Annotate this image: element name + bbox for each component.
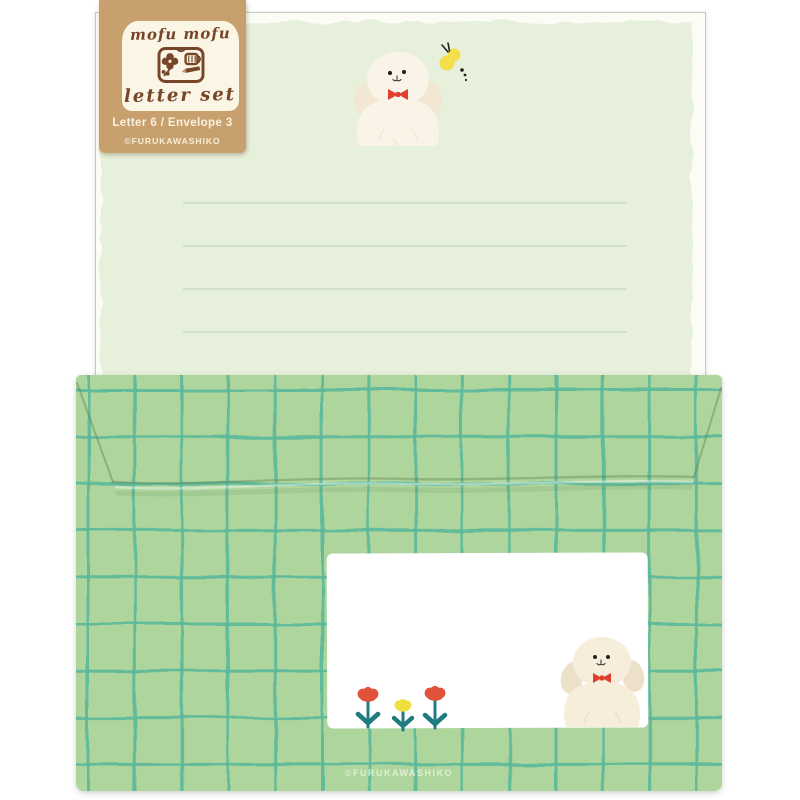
brand-name: mofu mofu (130, 25, 231, 43)
product-tag: mofu mofu (99, 0, 246, 153)
tag-contents: Letter 6 / Envelope 3 (99, 117, 246, 129)
tag-copyright: ©FURUKAWASHIKO (99, 136, 246, 146)
tulip-flowers (358, 686, 446, 730)
envelope: ©FURUKAWASHIKO (76, 375, 722, 791)
pencil-glyph (181, 66, 199, 72)
mug-glyph (185, 54, 199, 64)
letter-set-icon (149, 43, 213, 87)
product-name: letter set (124, 86, 236, 106)
tag-panel: mofu mofu (122, 21, 239, 111)
envelope-label-art (76, 375, 722, 791)
product-photo: ©FURUKAWASHIKO mofu mofu (0, 0, 800, 800)
puppy-illustration-envelope (558, 637, 647, 727)
